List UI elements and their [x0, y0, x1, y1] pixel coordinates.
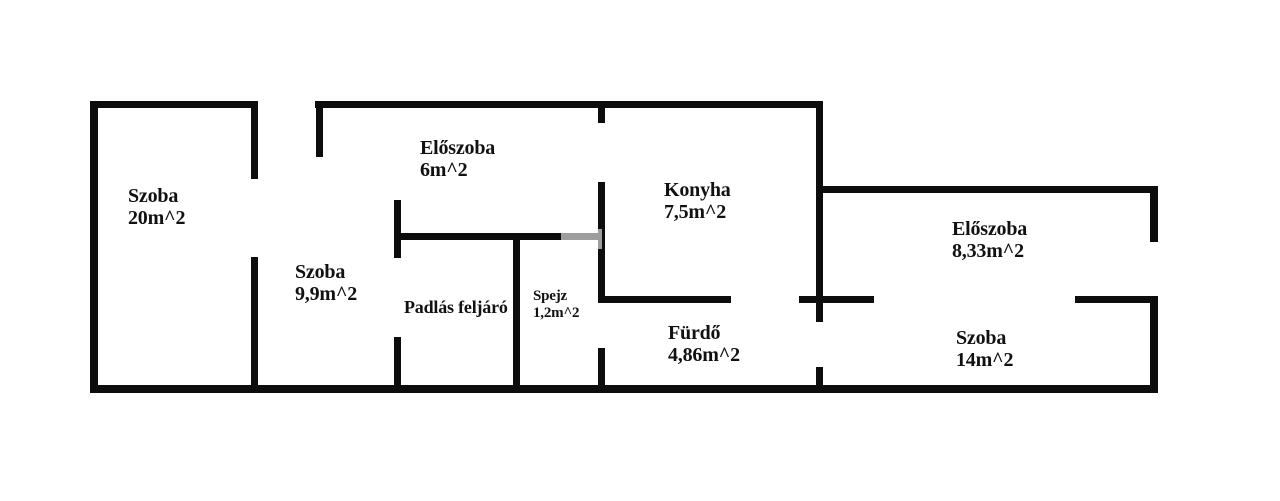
room-area: 8,33m^2 — [952, 240, 1027, 262]
room-name: Szoba — [128, 185, 185, 207]
room-name: Padlás feljáró — [404, 298, 508, 318]
room-label-padlas-feljaro: Padlás feljáró — [404, 298, 508, 318]
wall-outer-right-upper — [1150, 186, 1158, 242]
room-label-eloszoba-833: Előszoba8,33m^2 — [952, 218, 1027, 262]
room-name: Szoba — [956, 327, 1013, 349]
room-area: 9,9m^2 — [295, 283, 357, 305]
room-name: Előszoba — [420, 137, 495, 159]
room-name: Szoba — [295, 261, 357, 283]
room-name: Spejz — [533, 288, 579, 305]
wall-furdo-top-left — [598, 296, 731, 303]
watermark-overlay — [561, 229, 602, 249]
room-name: Előszoba — [952, 218, 1027, 240]
room-area: 7,5m^2 — [664, 201, 731, 223]
room-area: 20m^2 — [128, 207, 185, 229]
room-label-spejz-12: Spejz1,2m^2 — [533, 288, 579, 321]
room-label-eloszoba-6: Előszoba6m^2 — [420, 137, 495, 181]
room-area: 1,2m^2 — [533, 305, 579, 322]
wall-divider-konyha-lower — [598, 348, 605, 393]
wall-divider-szoba20-lower — [251, 257, 258, 393]
room-area: 6m^2 — [420, 159, 495, 181]
floor-plan-canvas: Szoba20m^2Előszoba6m^2Konyha7,5m^2Előszo… — [0, 0, 1280, 501]
wall-divider-konyha-stub — [598, 101, 605, 123]
room-name: Konyha — [664, 179, 731, 201]
wall-divider-padlas-lower — [394, 337, 401, 393]
room-label-konyha-75: Konyha7,5m^2 — [664, 179, 731, 223]
room-label-szoba-20: Szoba20m^2 — [128, 185, 185, 229]
room-label-szoba-14: Szoba14m^2 — [956, 327, 1013, 371]
wall-furdo-top-right — [799, 296, 874, 303]
room-label-furdo-486: Fürdő4,86m^2 — [668, 322, 740, 366]
room-label-szoba-99: Szoba9,9m^2 — [295, 261, 357, 305]
room-area: 14m^2 — [956, 349, 1013, 371]
wall-divider-padlas-upper — [394, 200, 401, 258]
wall-outer-right-lower — [1150, 296, 1158, 393]
wall-divider-konyha-right-upper — [816, 101, 823, 322]
wall-divider-konyha-right-lower — [816, 367, 823, 393]
wall-right-wing-top — [816, 186, 1158, 193]
wall-outer-top-left — [90, 101, 257, 108]
wall-outer-left — [90, 101, 98, 393]
wall-divider-szoba20-upper — [251, 101, 258, 179]
wall-outer-top-mid — [315, 101, 823, 108]
room-area: 4,86m^2 — [668, 344, 740, 366]
wall-entry-stub — [316, 101, 323, 157]
wall-szoba14-top-right — [1075, 296, 1158, 303]
room-name: Fürdő — [668, 322, 740, 344]
wall-divider-spejz — [513, 233, 520, 393]
